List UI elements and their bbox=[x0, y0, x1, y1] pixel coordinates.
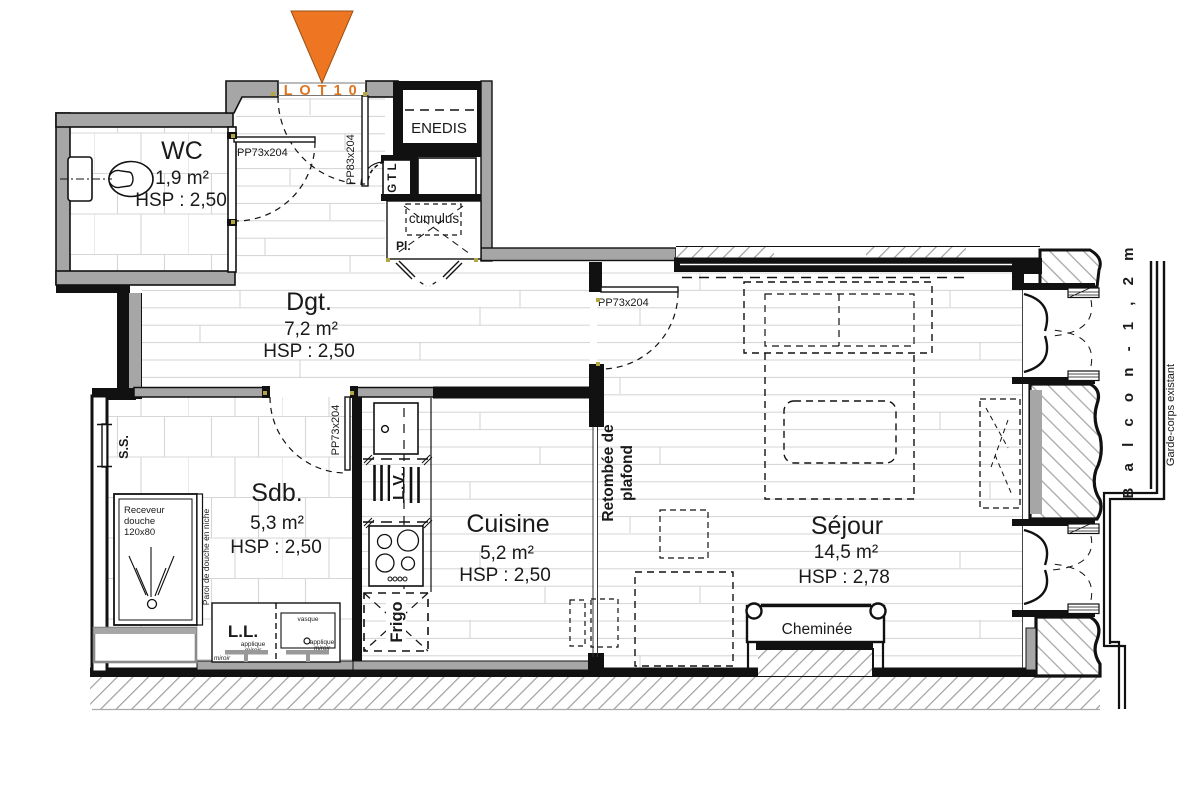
svg-text:vasque: vasque bbox=[298, 616, 319, 623]
svg-text:Cuisine: Cuisine bbox=[466, 510, 549, 538]
svg-text:HSP : 2,50: HSP : 2,50 bbox=[230, 537, 322, 558]
svg-text:Pl.: Pl. bbox=[396, 239, 411, 253]
svg-text:120x80: 120x80 bbox=[124, 527, 155, 538]
svg-text:Paroi de douche en niche: Paroi de douche en niche bbox=[201, 509, 211, 606]
svg-text:1,9 m²: 1,9 m² bbox=[155, 168, 209, 189]
svg-text:Receveur: Receveur bbox=[124, 505, 165, 516]
svg-text:Séjour: Séjour bbox=[811, 512, 883, 540]
svg-text:HSP : 2,50: HSP : 2,50 bbox=[135, 190, 227, 211]
svg-text:S.S.: S.S. bbox=[117, 435, 131, 459]
svg-text:HSP : 2,50: HSP : 2,50 bbox=[459, 565, 551, 586]
svg-text:Frigo: Frigo bbox=[388, 601, 406, 642]
svg-text:5,2 m²: 5,2 m² bbox=[480, 543, 534, 564]
svg-text:ENEDIS: ENEDIS bbox=[411, 120, 467, 137]
svg-text:7,2 m²: 7,2 m² bbox=[284, 319, 338, 340]
svg-text:Garde-corps existant: Garde-corps existant bbox=[1165, 364, 1177, 466]
svg-text:B a l c o n - 1 , 2 m: B a l c o n - 1 , 2 m bbox=[1120, 242, 1137, 499]
svg-text:PP73x204: PP73x204 bbox=[598, 297, 649, 309]
svg-text:PP73x204: PP73x204 bbox=[330, 405, 342, 456]
svg-text:WC: WC bbox=[161, 137, 203, 165]
svg-text:HSP : 2,50: HSP : 2,50 bbox=[263, 341, 355, 362]
svg-text:miroir: miroir bbox=[214, 655, 231, 662]
svg-text:Sdb.: Sdb. bbox=[251, 479, 302, 507]
svg-text:PP73x204: PP73x204 bbox=[237, 147, 288, 159]
svg-text:G T L: G T L bbox=[387, 163, 399, 192]
svg-text:14,5 m²: 14,5 m² bbox=[814, 542, 878, 563]
svg-text:HSP : 2,78: HSP : 2,78 bbox=[798, 567, 890, 588]
svg-text:Dgt.: Dgt. bbox=[286, 288, 332, 316]
svg-text:L.V.: L.V. bbox=[391, 472, 408, 500]
svg-text:Retombée de: Retombée de bbox=[600, 424, 617, 522]
svg-text:L.L.: L.L. bbox=[228, 622, 258, 641]
svg-text:cumulus: cumulus bbox=[409, 211, 460, 226]
svg-text:Cheminée: Cheminée bbox=[782, 621, 853, 638]
svg-text:PP83x204: PP83x204 bbox=[345, 134, 357, 185]
svg-text:douche: douche bbox=[124, 516, 155, 527]
svg-text:5,3 m²: 5,3 m² bbox=[250, 513, 304, 534]
svg-text:plafond: plafond bbox=[619, 445, 636, 501]
svg-text:L O T 1 0: L O T 1 0 bbox=[284, 83, 358, 99]
